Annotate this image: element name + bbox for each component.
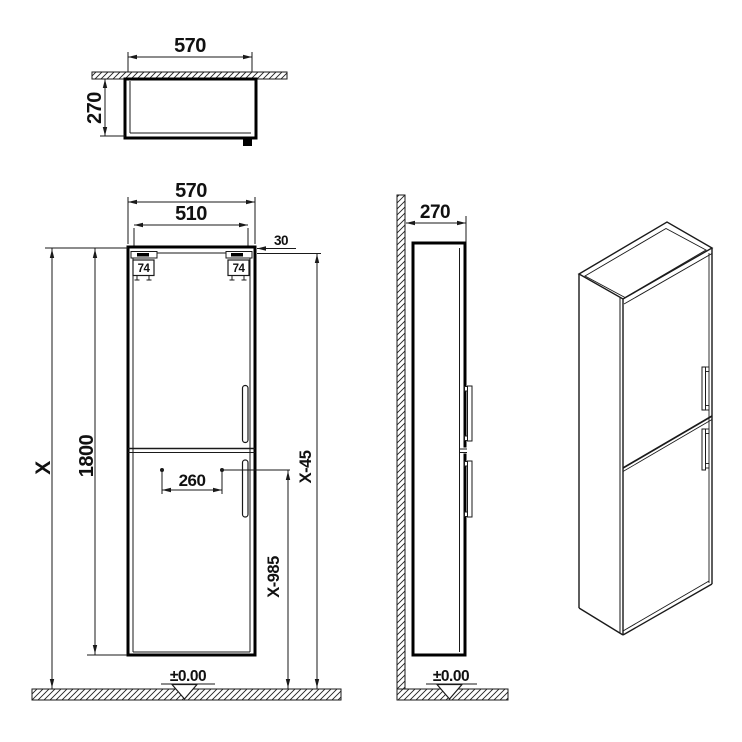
arrow-right-icon <box>243 55 252 59</box>
side-depth-label: 270 <box>420 202 450 223</box>
front-upper-handle <box>243 386 249 443</box>
upper-handle-level-label: X-45 <box>297 450 315 483</box>
arrow-up-icon <box>315 254 319 263</box>
arrow-down-icon <box>315 679 319 688</box>
arrow-right-icon <box>457 221 466 225</box>
front-width-label: 570 <box>175 180 207 202</box>
arrow-down-icon <box>286 679 290 688</box>
arrow-right-icon <box>239 223 248 227</box>
side-view-wall <box>397 195 405 689</box>
arrow-left-icon <box>128 200 137 204</box>
arrow-left-icon <box>406 221 415 225</box>
arrow-left-icon <box>134 223 143 227</box>
side-view: 270 ±0.00 <box>397 195 508 700</box>
side-view-cabinet-outline <box>413 243 465 655</box>
cabinet-drawing: 570 270 570 <box>0 0 742 742</box>
side-floor-level-label: ±0.00 <box>433 668 469 685</box>
cabinet-height-dimension: 1800 <box>76 248 98 655</box>
technical-drawing-sheet: 570 270 570 <box>0 0 742 742</box>
iso-upper-handle <box>702 367 709 410</box>
handle-offset-label: 260 <box>179 471 206 490</box>
front-view: 570 510 74 <box>32 180 341 700</box>
arrow-left-icon <box>128 55 137 59</box>
front-view-cabinet-outline <box>128 247 255 655</box>
front-lower-handle <box>243 460 249 517</box>
iso-lower-handle <box>702 429 709 470</box>
cabinet-height-label: 1800 <box>76 434 98 477</box>
arrow-up-icon <box>286 471 290 480</box>
iso-door-split <box>623 416 712 468</box>
isometric-view <box>579 222 712 635</box>
top-view-handle <box>243 138 252 146</box>
front-door-width-dimension: 510 <box>134 203 248 248</box>
side-depth-dimension: 270 <box>406 202 466 242</box>
top-view-cabinet-outline <box>125 79 256 138</box>
side-offset-label: 30 <box>274 233 288 248</box>
front-door-width-label: 510 <box>175 203 207 225</box>
arrow-up-icon <box>50 249 54 258</box>
total-height-dimension: X <box>32 248 55 689</box>
arrow-down-icon <box>93 645 97 654</box>
top-width-label: 570 <box>174 35 206 57</box>
arrow-down-icon <box>50 679 54 688</box>
upper-handle-level-dimension: X-45 <box>257 254 321 690</box>
iso-top-face <box>579 222 712 299</box>
arrow-down-icon <box>103 127 107 136</box>
arrow-up-icon <box>103 79 107 88</box>
lower-handle-level-label: X-985 <box>265 556 283 598</box>
arrow-left-icon <box>257 246 266 250</box>
front-floor-level-label: ±0.00 <box>170 668 206 685</box>
hinge-bracket-left: 74 <box>131 252 157 281</box>
top-view-depth-dimension: 270 <box>84 79 125 136</box>
top-view-width-dimension: 570 <box>128 35 252 72</box>
side-offset-dimension: 30 <box>257 233 296 251</box>
top-depth-label: 270 <box>84 92 106 124</box>
arrow-up-icon <box>93 249 97 258</box>
hinge-bracket-right: 74 <box>226 252 252 281</box>
hinge-left-label: 74 <box>138 263 151 275</box>
hinge-right-label: 74 <box>233 263 246 275</box>
top-view: 570 270 <box>84 35 287 146</box>
total-height-label: X <box>32 461 55 475</box>
arrow-right-icon <box>246 200 255 204</box>
